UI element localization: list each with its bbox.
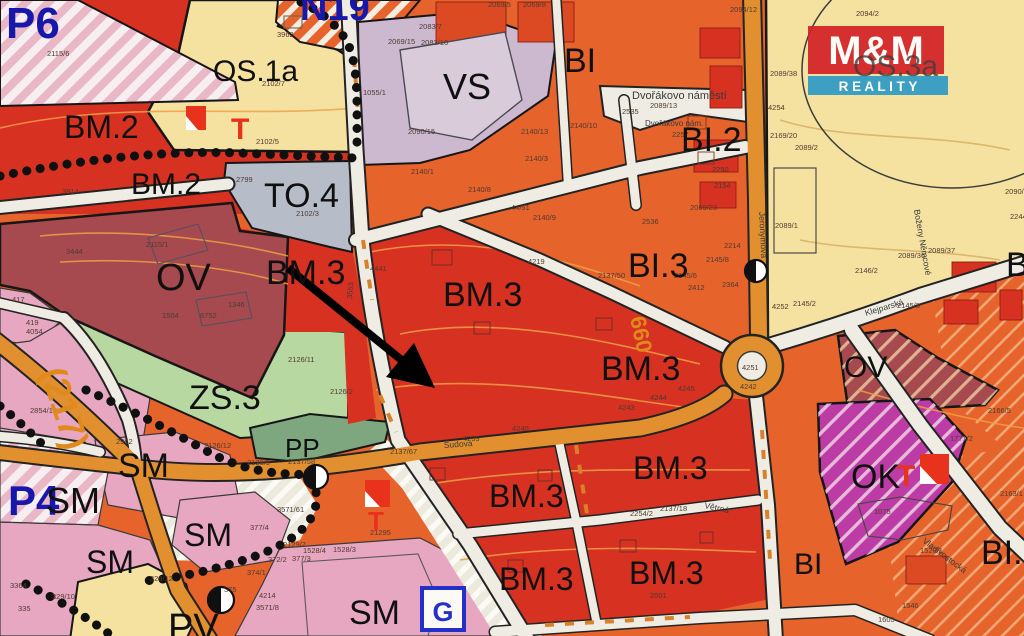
parcel-number: 1546 — [902, 601, 919, 610]
parcel-number: 2799 — [236, 175, 253, 184]
parcel-number: 335 — [18, 604, 31, 613]
parcel-number: 4244 — [650, 393, 667, 402]
parcel-number: 2094/12 — [730, 5, 757, 14]
gas-icon-letter: G — [432, 597, 453, 627]
parcel-number: 2254/2 — [630, 509, 653, 518]
zone-label: BM.3 — [489, 478, 564, 514]
parcel-number: 2163/1 — [1000, 489, 1023, 498]
parcel-number: 2089/13 — [650, 101, 677, 110]
parcel-number: 2126/9 — [247, 458, 270, 467]
parcel-number: 4240 — [512, 424, 529, 433]
parcel-number: 2001 — [650, 591, 667, 600]
zone-label: ZS.3 — [189, 379, 261, 417]
parcel-number: 1075 — [874, 507, 891, 516]
parcel-number: 2140/8 — [468, 185, 491, 194]
zone-label: PP — [285, 433, 320, 463]
parcel-number: 2089/38 — [770, 69, 797, 78]
parcel-number: 2115/1 — [146, 240, 168, 249]
zone-label: OV — [844, 351, 887, 384]
parcel-number: 2145/8 — [706, 255, 729, 264]
parcel-number: 419 — [26, 318, 39, 327]
zone-label: T — [897, 460, 915, 493]
flag-icon — [186, 106, 206, 130]
parcel-number: 1504 — [162, 311, 179, 320]
zone-label: BM.3 — [266, 254, 345, 292]
parcel-number: 3444 — [66, 247, 83, 256]
zone-label: VS — [443, 66, 491, 107]
street-name: Šudova — [443, 438, 473, 450]
parcel-number: 2166/5 — [988, 406, 1011, 415]
parcel-number: 2126/11 — [288, 355, 315, 364]
parcel-number: 3553 — [345, 282, 355, 299]
zone-label: BM.3 — [443, 276, 522, 314]
parcel-number: 2069/23 — [690, 203, 717, 212]
parcel-number: 3364 — [10, 581, 27, 590]
parcel-number: 374/1 — [247, 568, 266, 577]
parcel-number: 2083/10 — [421, 38, 448, 47]
zone-label: BM.2 — [131, 168, 201, 201]
map-viewport: G M&M R E A L I T Y 2115/639622102/72102… — [0, 0, 1024, 636]
parcel-number: 2089/1 — [775, 221, 798, 230]
zone-label: BM.3 — [629, 555, 704, 591]
parcel-number: 2244 — [1010, 212, 1024, 221]
parcel-number: 4441 — [370, 264, 387, 273]
parcel-number: 2146/2 — [855, 266, 878, 275]
zone-label: BM.3 — [499, 561, 574, 597]
parcel-number: 3571/8 — [256, 603, 279, 612]
parcel-number: 2126/2 — [330, 387, 353, 396]
parcel-number: 3962 — [277, 30, 294, 39]
parcel-number: 375 — [224, 585, 237, 594]
flag-icon — [920, 454, 949, 484]
parcel-number: 1528/3 — [333, 545, 356, 554]
parcel-number: 2962 — [116, 437, 133, 446]
parcel-number: 329/12 — [150, 574, 173, 583]
parcel-number: 2102/5 — [256, 137, 279, 146]
parcel-number: 4252 — [772, 302, 789, 311]
zone-label: OK — [851, 458, 900, 496]
parcel-number: 4245 — [678, 384, 695, 393]
parcel-number: 2083/7 — [419, 22, 442, 31]
zone-label: P6 — [6, 0, 60, 48]
parcel-number: 1528/4 — [303, 546, 326, 555]
zone-label: BM.3 — [633, 450, 708, 486]
parcel-number: 2129/7 — [283, 540, 306, 549]
parcel-number: 2140/13 — [521, 127, 548, 136]
parcel-number: 2090/9 — [1005, 187, 1024, 196]
parcel-number: 2214 — [724, 241, 741, 250]
parcel-number: 1605 — [878, 615, 895, 624]
parcel-number: 4243 — [618, 403, 635, 412]
gas-icon: G — [422, 588, 464, 630]
zone-label: SM — [46, 480, 100, 521]
zone-label: BI. — [981, 534, 1023, 572]
zone-label: SM — [349, 594, 400, 632]
parcel-number: 2137/67 — [390, 447, 417, 456]
zone-label: OV — [156, 257, 212, 299]
parcel-number: 44/51 — [511, 203, 530, 212]
parcel-number: 4254 — [768, 103, 785, 112]
parcel-number: 2089/2 — [795, 143, 818, 152]
zone-label: PV — [168, 607, 219, 636]
parcel-number: 2412 — [688, 283, 705, 292]
parcel-number: 4214 — [259, 591, 276, 600]
parcel-number: 1055/1 — [363, 88, 386, 97]
parcel-number: 4242 — [740, 382, 757, 391]
parcel-number: 2535 — [622, 107, 639, 116]
parcel-number: 3914 — [62, 187, 79, 196]
zone-label: BI.3 — [628, 247, 688, 285]
zone-label: BM.2 — [64, 109, 139, 145]
parcel-number: 2069/15 — [388, 37, 415, 46]
parcel-number: 2169/20 — [770, 131, 797, 140]
parcel-number: 2090/15 — [408, 127, 435, 136]
zone-label: BI.2 — [681, 121, 741, 159]
parcel-number: 2137/18 — [660, 504, 687, 513]
parcel-number: 2536 — [642, 217, 659, 226]
half-circle-icon — [745, 260, 767, 282]
parcel-number: 4219 — [528, 257, 545, 266]
zone-label: BI — [564, 42, 596, 80]
parcel-number: 2145/2 — [793, 299, 816, 308]
half-circle-icon — [304, 465, 328, 489]
parcel-number: 377/3 — [292, 554, 311, 563]
parcel-number: 2069/5 — [488, 0, 511, 9]
zone-label: OS.3a — [853, 50, 938, 83]
parcel-number: 1346 — [228, 300, 245, 309]
parcel-number: 2250 — [712, 165, 729, 174]
parcel-number: 4054 — [26, 327, 43, 336]
parcel-number: 2094/2 — [856, 9, 879, 18]
parcel-number: 2364 — [722, 280, 739, 289]
zoning-map[interactable]: G M&M R E A L I T Y 2115/639622102/72102… — [0, 0, 1024, 636]
zone-label: OS.1a — [213, 55, 298, 88]
parcel-number: 2089/37 — [928, 246, 955, 255]
parcel-number: 2137/50 — [598, 271, 625, 280]
zone-label: SM — [86, 544, 134, 580]
parcel-number: 2140/3 — [525, 154, 548, 163]
parcel-number: 2154 — [714, 181, 731, 190]
zone-label: T — [368, 506, 384, 536]
parcel-number: 3571/61 — [277, 505, 304, 514]
parcel-number: 417 — [12, 295, 25, 304]
zone-label: N19 — [300, 0, 370, 29]
flag-icon — [365, 480, 390, 507]
zone-label: T — [231, 113, 249, 146]
street-name: Dvořákovo náměstí — [632, 90, 727, 102]
zone-label: BI — [794, 548, 822, 581]
parcel-number: 372/2 — [268, 555, 287, 564]
parcel-number: 377/4 — [250, 523, 269, 532]
parcel-number: 6752 — [200, 311, 217, 320]
parcel-number: 2126/12 — [204, 441, 231, 450]
parcel-number: 2069/8 — [523, 0, 546, 9]
parcel-number: 329/10 — [52, 592, 75, 601]
zone-label: BM.3 — [601, 350, 680, 388]
zone-label: SM — [184, 517, 232, 553]
parcel-number: 2140/9 — [533, 213, 556, 222]
parcel-number: 4251 — [742, 363, 759, 372]
zone-label: TO.4 — [264, 177, 339, 215]
parcel-number: 2140/1 — [411, 167, 434, 176]
parcel-number: 2115/6 — [47, 49, 69, 58]
parcel-number: 2140/10 — [570, 121, 597, 130]
zone-label: SM — [118, 447, 169, 485]
parcel-number: 1771/2 — [950, 434, 973, 443]
zone-label: B — [1006, 246, 1024, 284]
